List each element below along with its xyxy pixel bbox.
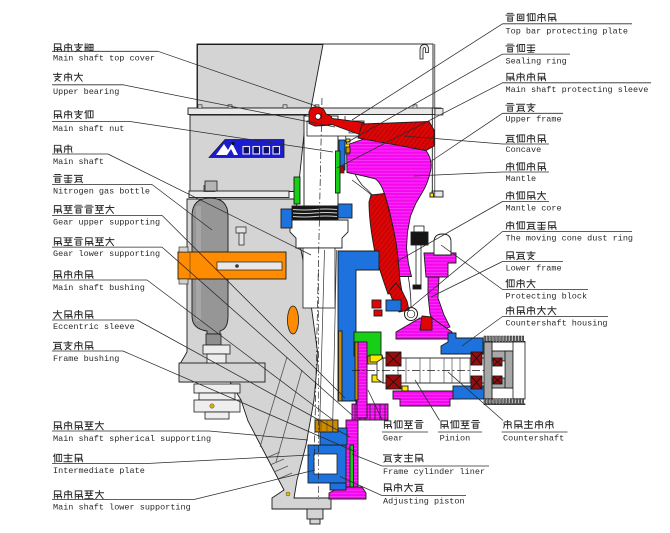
svg-text:Nitrogen gas bottle: Nitrogen gas bottle [53, 187, 150, 197]
svg-text:Main shaft protecting sleeve: Main shaft protecting sleeve [506, 85, 649, 95]
svg-text:Main shaft top cover: Main shaft top cover [53, 54, 155, 64]
svg-text:Upper bearing: Upper bearing [53, 87, 119, 97]
svg-text:Adjusting piston: Adjusting piston [383, 497, 465, 507]
svg-text:Protecting block: Protecting block [506, 292, 588, 302]
svg-text:Gear upper supporting: Gear upper supporting [53, 218, 160, 228]
svg-text:Main shaft: Main shaft [53, 157, 104, 167]
svg-text:The moving cone dust ring: The moving cone dust ring [506, 234, 634, 244]
svg-text:Mantle: Mantle [506, 174, 537, 184]
svg-text:Pinion: Pinion [440, 434, 471, 444]
svg-text:Concave: Concave [506, 145, 542, 155]
svg-text:Frame bushing: Frame bushing [53, 354, 119, 364]
svg-text:Intermediate plate: Intermediate plate [53, 466, 145, 476]
svg-text:Upper frame: Upper frame [506, 114, 562, 124]
svg-text:Gear lower supporting: Gear lower supporting [53, 249, 160, 259]
svg-text:Mantle core: Mantle core [506, 204, 562, 214]
svg-text:Lower frame: Lower frame [506, 264, 562, 274]
svg-text:Main shaft bushing: Main shaft bushing [53, 283, 145, 293]
svg-text:Eccentric sleeve: Eccentric sleeve [53, 322, 135, 332]
svg-text:Top bar protecting plate: Top bar protecting plate [506, 26, 628, 36]
svg-text:Main shaft nut: Main shaft nut [53, 124, 124, 134]
svg-text:Frame cylinder liner: Frame cylinder liner [383, 467, 485, 477]
svg-text:Main shaft lower supporting: Main shaft lower supporting [53, 503, 191, 513]
svg-text:Gear: Gear [383, 434, 403, 444]
svg-text:Countershaft housing: Countershaft housing [506, 319, 608, 329]
svg-text:Countershaft: Countershaft [503, 434, 564, 444]
svg-text:Sealing ring: Sealing ring [506, 56, 567, 66]
svg-text:Main shaft spherical supportin: Main shaft spherical supporting [53, 434, 211, 444]
